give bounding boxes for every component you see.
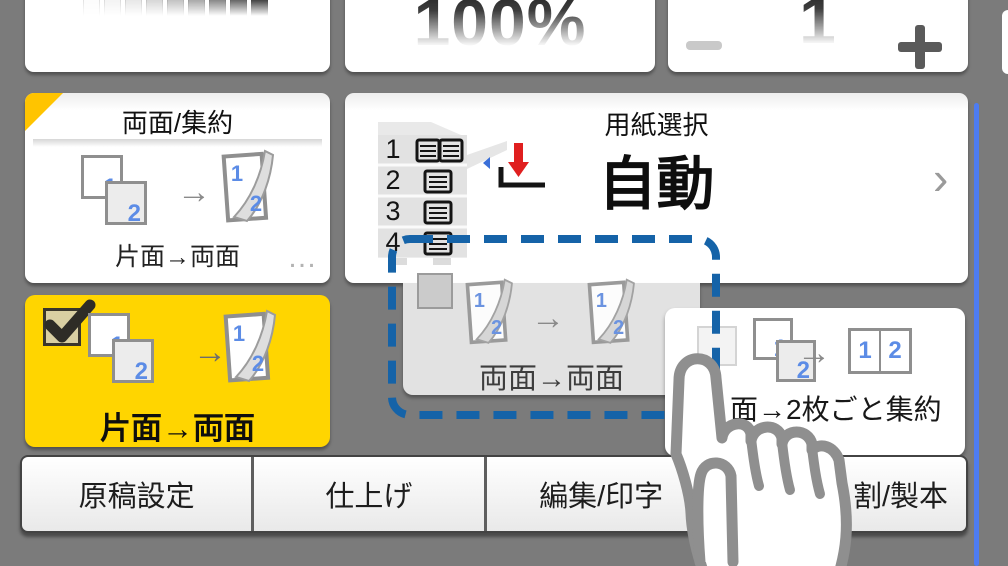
tab-label: 原稿設定	[79, 473, 195, 515]
duplex-tile-caption: 片面→両面	[25, 237, 330, 273]
duplex-tile-title: 両面/集約	[25, 103, 330, 140]
density-swatch	[146, 0, 163, 22]
copies-tile: 1	[668, 0, 968, 72]
tab-finishing[interactable]: 仕上げ	[254, 457, 483, 531]
svg-text:1: 1	[231, 161, 243, 186]
option-checkbox-checked[interactable]	[43, 308, 81, 346]
title-divider	[33, 139, 322, 147]
density-swatch	[251, 0, 268, 22]
copier-touchscreen: 100% 1 両面/集約 1 2 → 1 2 片面→両面 … 用紙選択 自動 ›	[0, 0, 1008, 566]
tab-label: 仕上げ	[325, 473, 412, 515]
duplex-page-icon: 1 2	[221, 147, 283, 231]
tab-original-settings[interactable]: 原稿設定	[22, 457, 251, 531]
density-swatch	[83, 0, 100, 22]
duplex-page-icon: 1 2	[223, 307, 285, 391]
chevron-right-icon: ›	[933, 155, 948, 201]
density-swatch	[230, 0, 247, 22]
next-tile-edge	[1002, 10, 1008, 74]
more-options-dots[interactable]: …	[287, 241, 319, 275]
hand-cursor	[612, 338, 1008, 566]
svg-text:2: 2	[250, 191, 262, 216]
density-tile[interactable]	[25, 0, 330, 72]
density-swatch	[209, 0, 226, 22]
density-swatch	[188, 0, 205, 22]
arrow-icon: →	[177, 175, 211, 209]
density-swatch	[104, 0, 121, 22]
minus-button[interactable]	[686, 41, 722, 50]
selected-option-caption: 片面→両面	[25, 403, 330, 448]
svg-text:2: 2	[252, 351, 264, 376]
duplex-combine-tile[interactable]: 両面/集約 1 2 → 1 2 片面→両面 …	[25, 93, 330, 283]
density-swatch	[167, 0, 184, 22]
svg-text:3: 3	[385, 196, 400, 226]
svg-text:2: 2	[385, 165, 400, 195]
density-gradient	[83, 0, 268, 22]
zoom-ratio-tile[interactable]: 100%	[345, 0, 655, 72]
density-swatch	[125, 0, 142, 22]
arrow-icon: →	[193, 335, 227, 369]
option-simplex-to-duplex-selected[interactable]: 1 2 → 1 2 片面→両面	[25, 295, 330, 447]
zoom-ratio-value: 100%	[345, 0, 655, 60]
svg-text:1: 1	[385, 134, 400, 164]
svg-text:1: 1	[233, 321, 245, 346]
vertical-scrollbar[interactable]	[974, 103, 979, 566]
plus-icon	[915, 25, 925, 69]
